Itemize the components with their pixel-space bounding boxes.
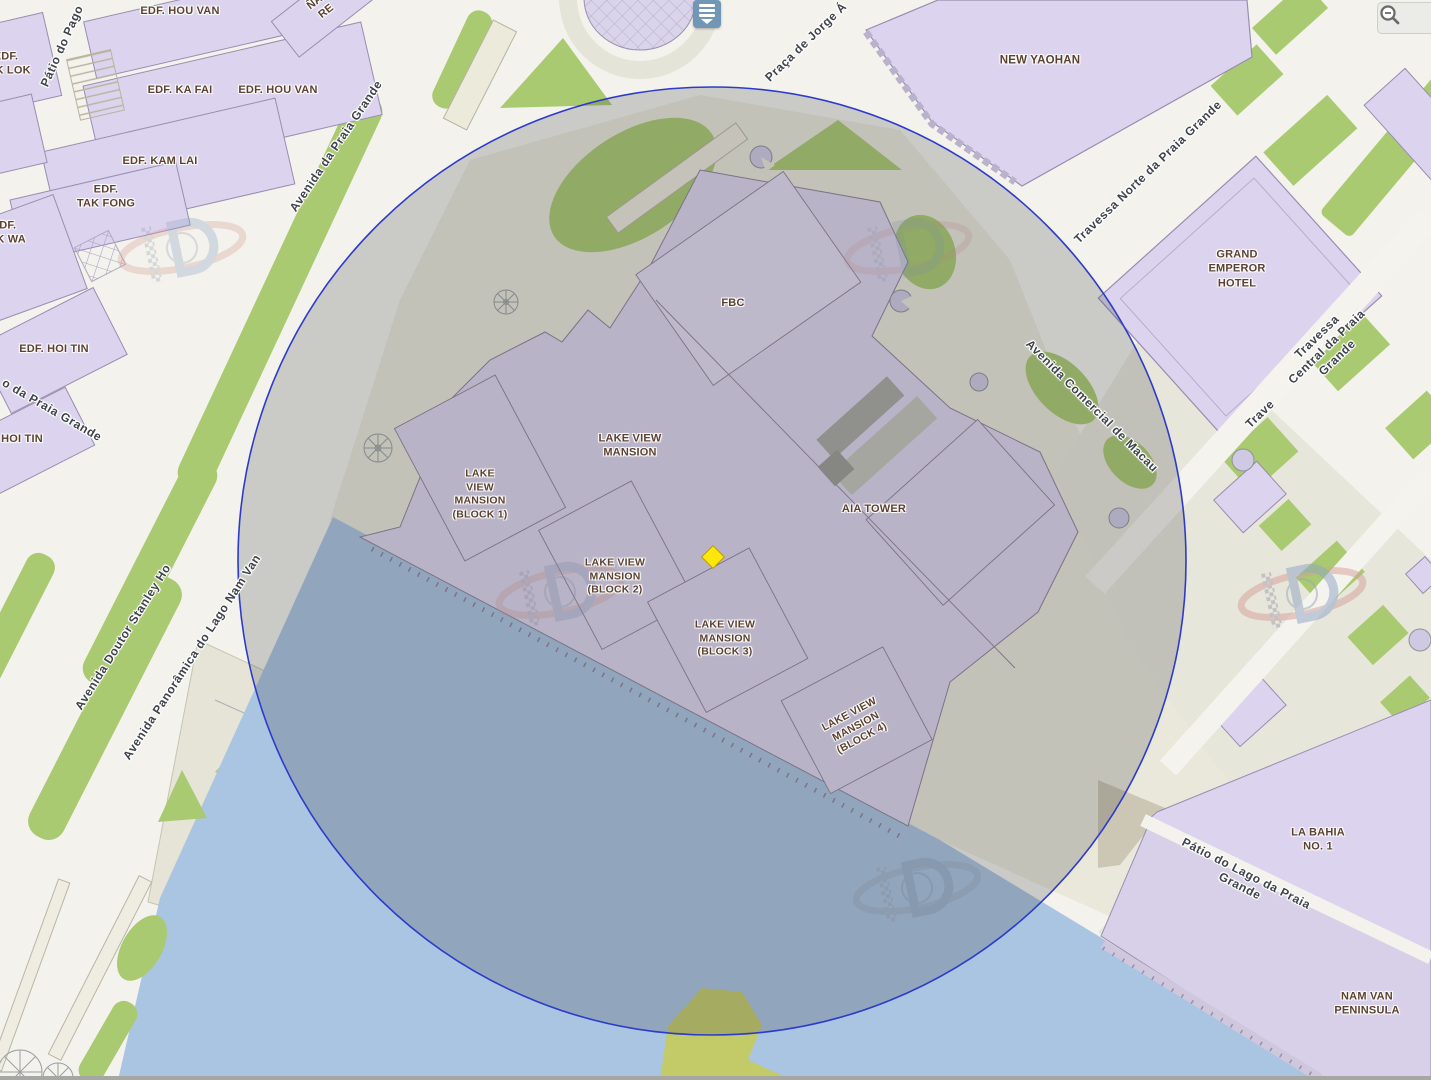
chevron-down-icon xyxy=(701,19,713,24)
map-edge-strip xyxy=(0,1076,1431,1080)
zoom-out-button[interactable] xyxy=(1410,5,1431,31)
layers-icon xyxy=(699,4,715,7)
map-canvas xyxy=(0,0,1431,1080)
map-zoom-toolbar xyxy=(1377,2,1431,34)
map-viewport[interactable]: EDF. HOU VAN EDF. TAK LOK EDF. KA FAI ED… xyxy=(0,0,1431,1080)
layers-widget-button[interactable] xyxy=(693,0,721,28)
zoom-out-icon xyxy=(1378,3,1402,27)
